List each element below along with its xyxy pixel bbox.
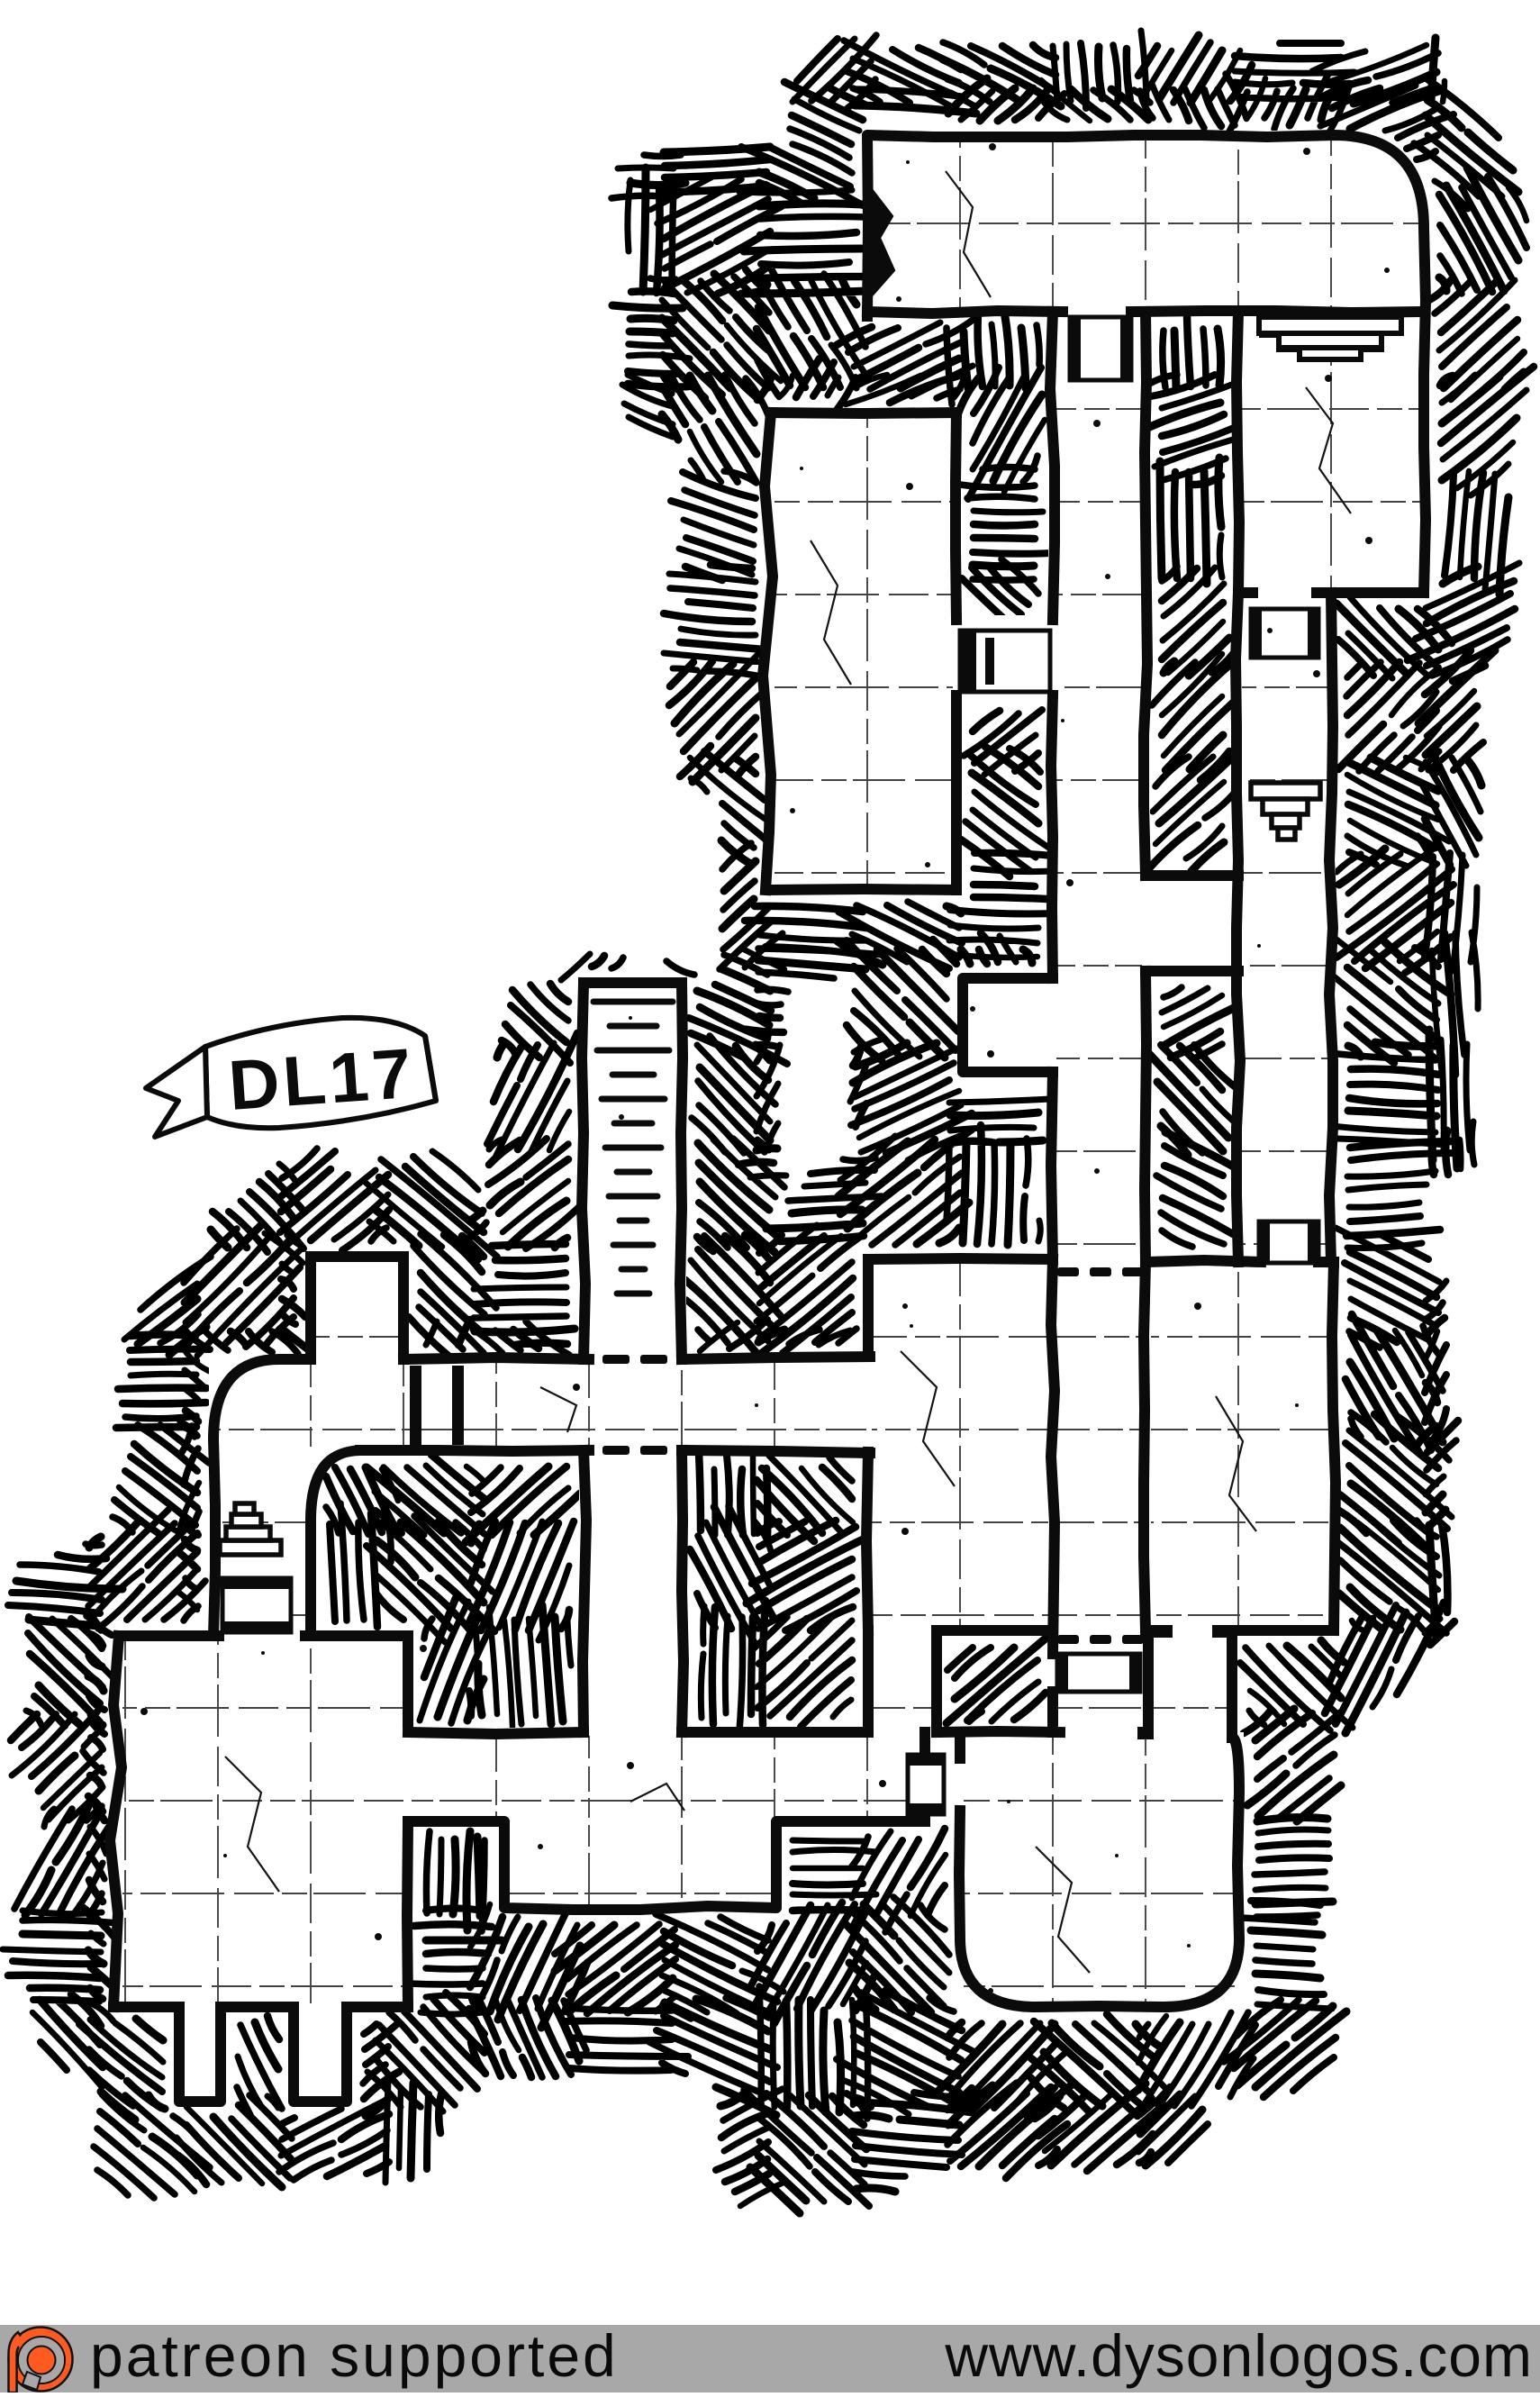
svg-text:patreon supported: patreon supported	[90, 2322, 619, 2389]
svg-text:www.dysonlogos.com: www.dysonlogos.com	[944, 2322, 1533, 2389]
svg-text:DL17: DL17	[226, 1033, 417, 1125]
